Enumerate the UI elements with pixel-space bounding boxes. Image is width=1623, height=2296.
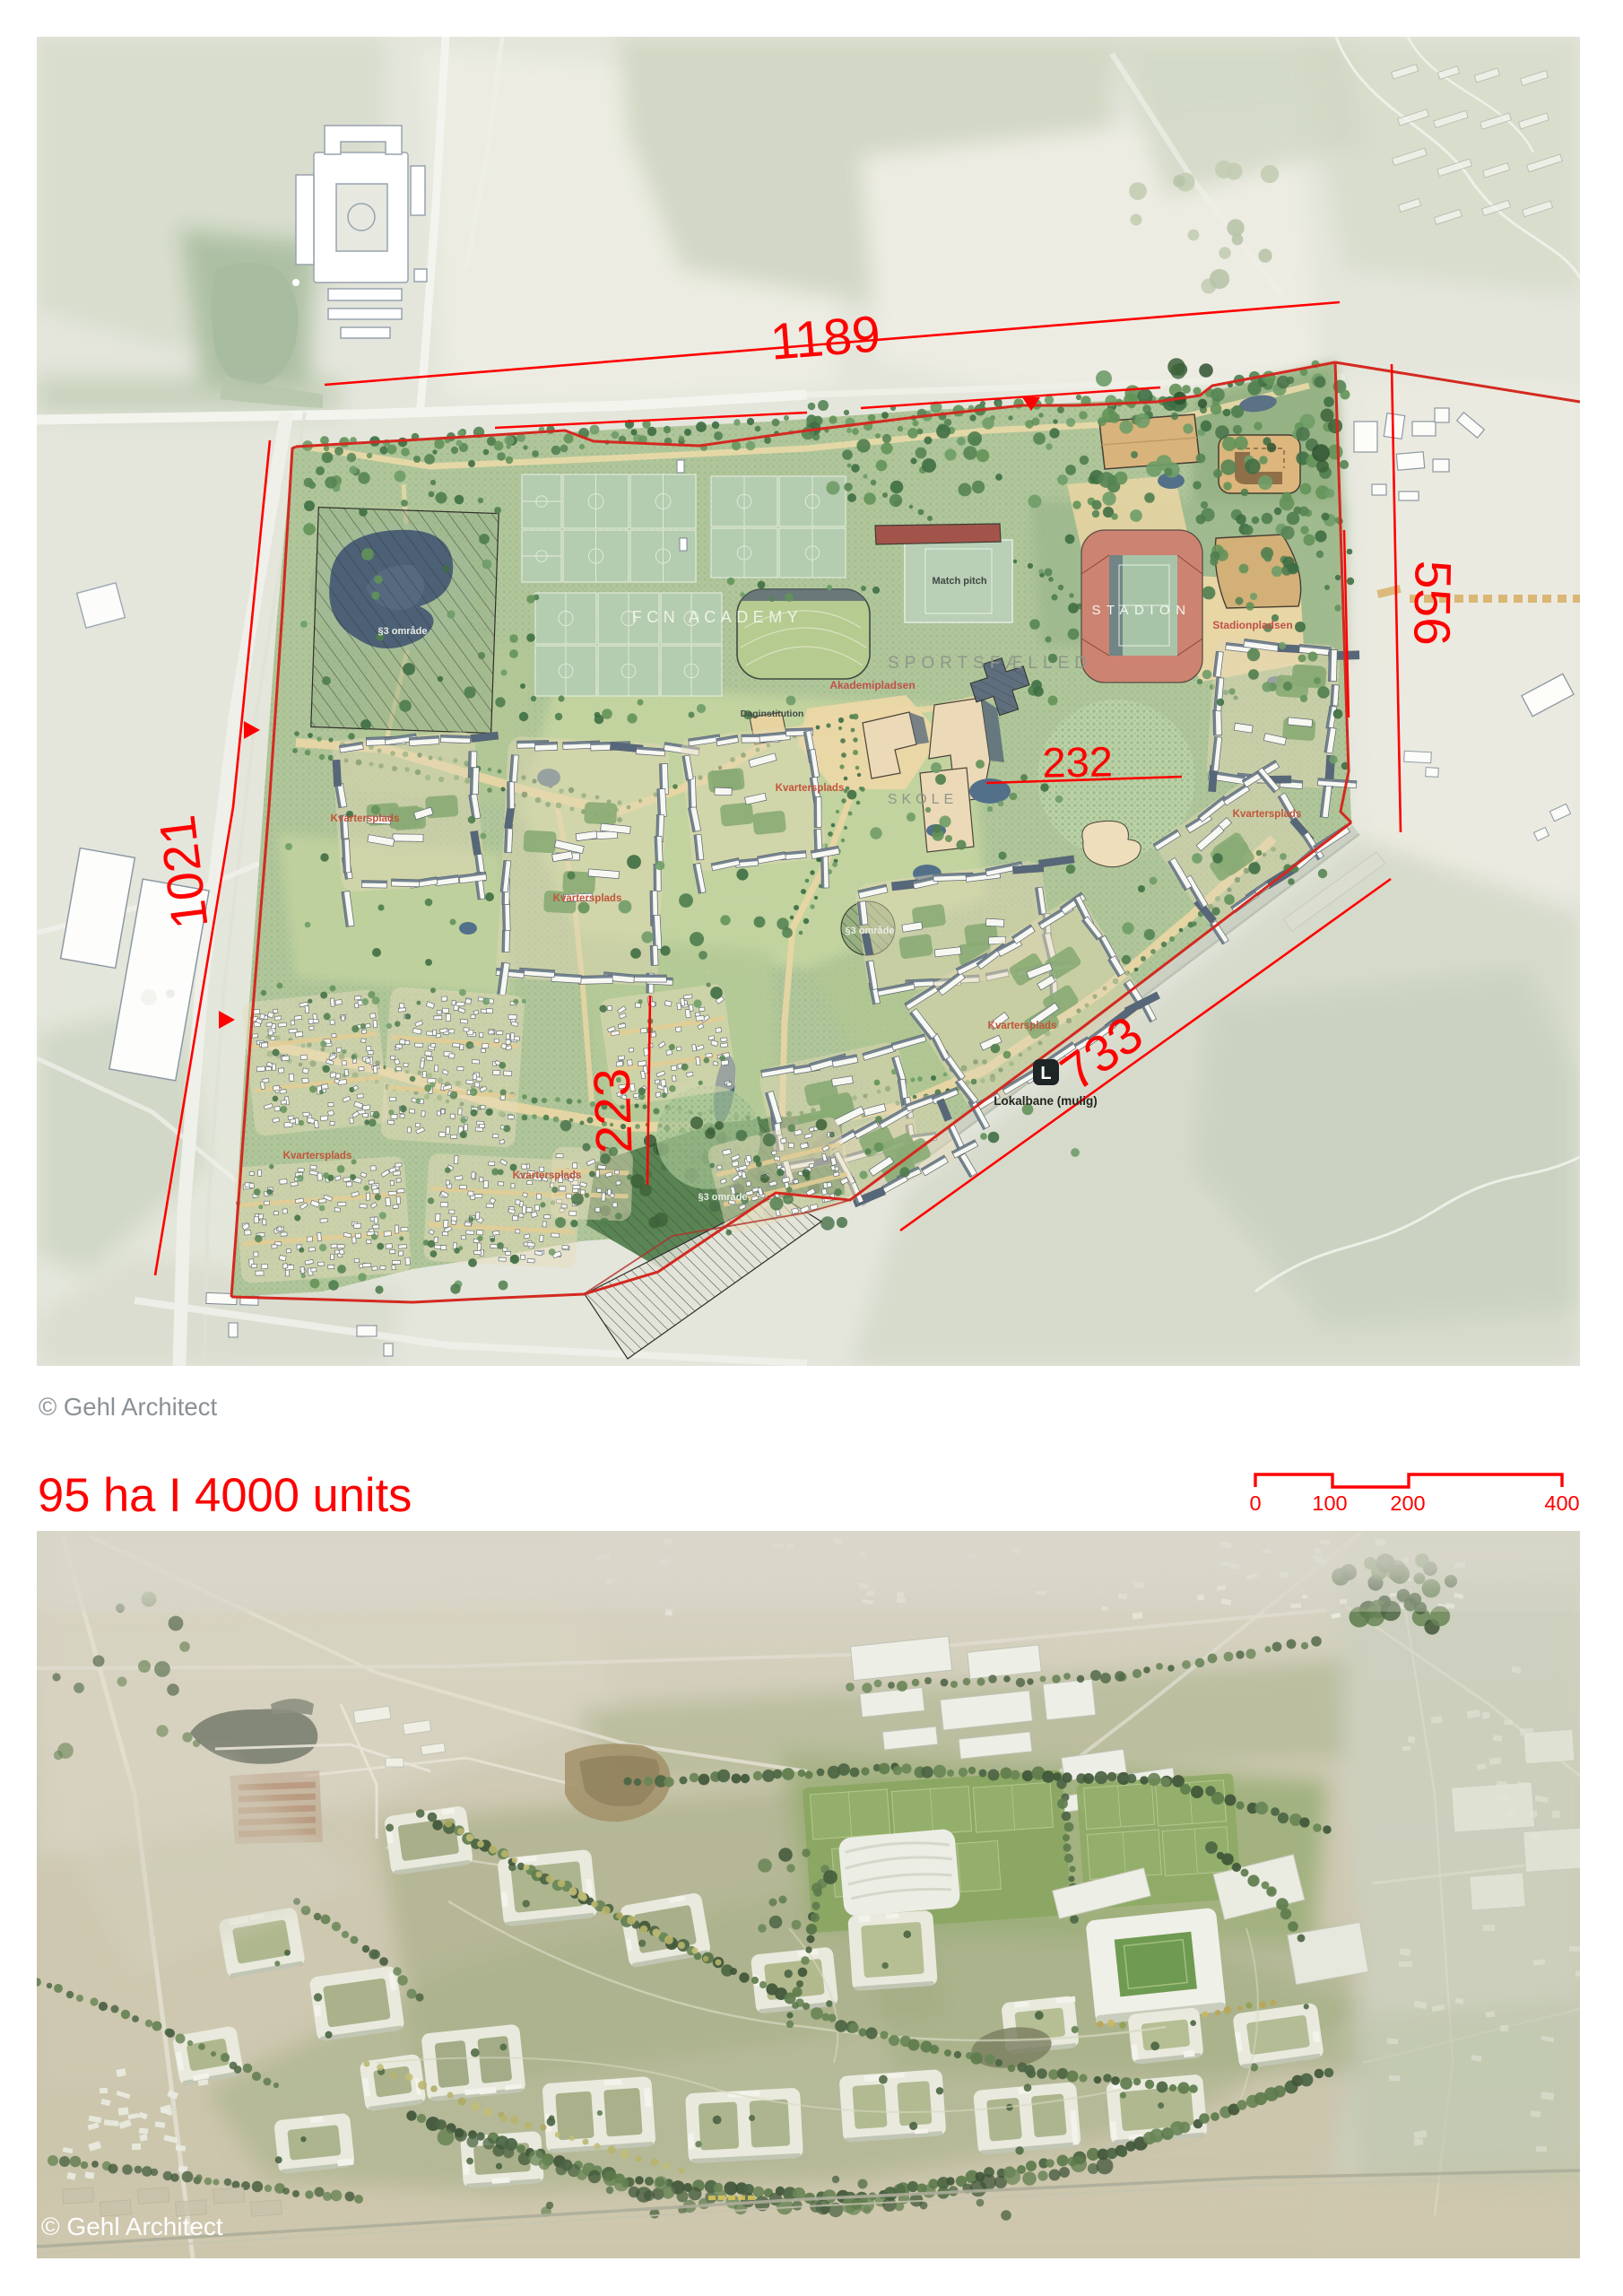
svg-text:§3 område: §3 område — [698, 1192, 747, 1203]
svg-text:Kvartersplads: Kvartersplads — [1233, 809, 1302, 820]
svg-text:Akademipladsen: Akademipladsen — [829, 679, 915, 691]
svg-text:Kvartersplads: Kvartersplads — [988, 1021, 1057, 1031]
svg-text:§3 område: §3 område — [845, 926, 894, 936]
svg-text:SPORTSFÆLLED: SPORTSFÆLLED — [888, 654, 1092, 673]
svg-text:Stadionpladsen: Stadionpladsen — [1212, 619, 1292, 631]
svg-text:232: 232 — [1042, 737, 1113, 786]
svg-text:Match pitch: Match pitch — [932, 576, 986, 587]
svg-text:© Gehl Architect: © Gehl Architect — [41, 2213, 223, 2240]
svg-text:1189: 1189 — [768, 305, 882, 371]
svg-text:SKOLE: SKOLE — [888, 792, 958, 807]
svg-text:Kvartersplads: Kvartersplads — [283, 1151, 352, 1161]
svg-text:Lokalbane (mulig): Lokalbane (mulig) — [994, 1094, 1098, 1108]
svg-text:223: 223 — [583, 1067, 643, 1154]
svg-text:0: 0 — [1249, 1492, 1261, 1515]
svg-text:Kvartersplads: Kvartersplads — [553, 893, 622, 904]
svg-text:STADION: STADION — [1091, 603, 1191, 618]
svg-text:L: L — [1040, 1064, 1051, 1083]
svg-text:556: 556 — [1402, 560, 1462, 646]
svg-text:200: 200 — [1390, 1492, 1425, 1515]
svg-text:§3 område: §3 område — [378, 626, 427, 637]
svg-text:FCN ACADEMY: FCN ACADEMY — [632, 608, 803, 626]
svg-text:100: 100 — [1312, 1492, 1347, 1515]
svg-text:Kvartersplads: Kvartersplads — [513, 1170, 582, 1181]
svg-text:Daginstitution: Daginstitution — [741, 709, 804, 719]
svg-text:400: 400 — [1544, 1492, 1579, 1515]
svg-text:Kvartersplads: Kvartersplads — [776, 783, 845, 794]
svg-text:Kvartersplads: Kvartersplads — [331, 813, 400, 824]
